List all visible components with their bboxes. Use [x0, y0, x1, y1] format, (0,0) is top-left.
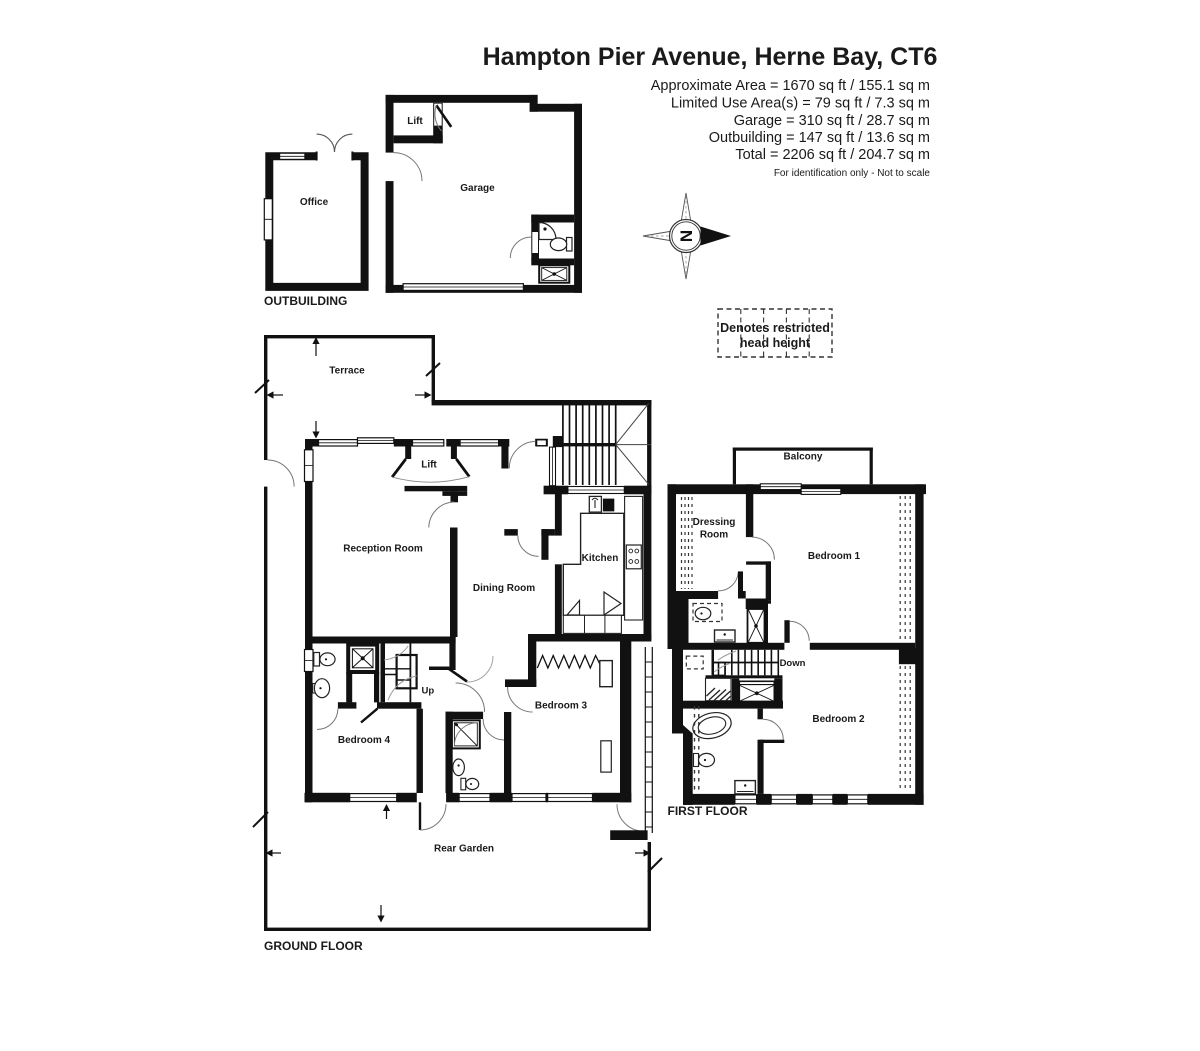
svg-text:Approximate Area = 1670 sq ft: Approximate Area = 1670 sq ft / 155.1 sq… — [651, 78, 930, 94]
svg-text:Balcony: Balcony — [784, 452, 823, 463]
svg-text:Denotes restricted: Denotes restricted — [720, 321, 830, 335]
svg-text:Bedroom 4: Bedroom 4 — [338, 735, 391, 746]
svg-text:Terrace: Terrace — [329, 366, 365, 377]
svg-text:Office: Office — [300, 197, 329, 208]
svg-text:Dressing: Dressing — [693, 517, 736, 528]
svg-text:Bedroom 3: Bedroom 3 — [535, 701, 588, 712]
svg-text:Reception Room: Reception Room — [343, 544, 423, 555]
svg-text:FIRST FLOOR: FIRST FLOOR — [668, 804, 748, 818]
svg-text:Kitchen: Kitchen — [582, 553, 619, 564]
svg-text:Lift: Lift — [407, 116, 423, 127]
svg-text:For identification only - Not: For identification only - Not to scale — [774, 168, 931, 179]
svg-text:Total = 2206 sq ft / 204.7 sq: Total = 2206 sq ft / 204.7 sq m — [735, 147, 930, 163]
svg-text:N: N — [677, 230, 696, 242]
svg-text:Room: Room — [700, 530, 728, 541]
svg-text:GROUND FLOOR: GROUND FLOOR — [264, 939, 363, 953]
svg-text:head height: head height — [740, 336, 811, 350]
svg-text:Dining Room: Dining Room — [473, 583, 535, 594]
svg-text:Garage = 310 sq ft / 28.7 sq m: Garage = 310 sq ft / 28.7 sq m — [734, 113, 930, 129]
svg-text:OUTBUILDING: OUTBUILDING — [264, 294, 347, 308]
svg-text:Up: Up — [422, 686, 435, 697]
svg-text:Limited Use Area(s) = 79 sq ft: Limited Use Area(s) = 79 sq ft / 7.3 sq … — [671, 96, 930, 112]
svg-text:Garage: Garage — [460, 183, 495, 194]
svg-text:Bedroom 2: Bedroom 2 — [812, 714, 865, 725]
svg-text:Bedroom 1: Bedroom 1 — [808, 551, 861, 562]
svg-text:Lift: Lift — [421, 460, 437, 471]
svg-text:Hampton Pier Avenue, Herne Bay: Hampton Pier Avenue, Herne Bay, CT6 — [483, 43, 938, 71]
svg-text:Outbuilding = 147 sq ft / 13.6: Outbuilding = 147 sq ft / 13.6 sq m — [709, 130, 930, 146]
svg-text:Rear Garden: Rear Garden — [434, 844, 494, 855]
svg-text:Down: Down — [780, 658, 806, 669]
